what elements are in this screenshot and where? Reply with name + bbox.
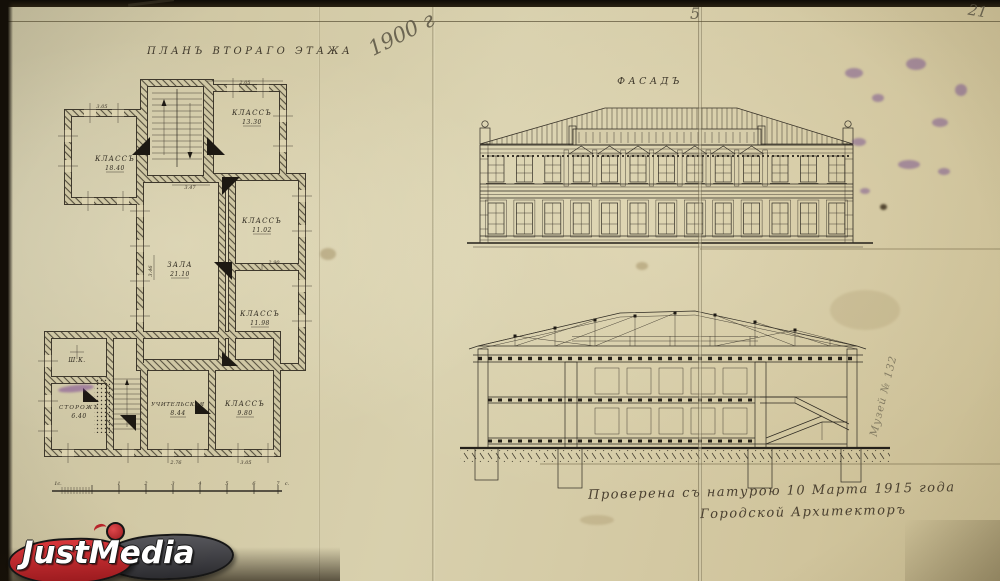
scale-tick-label: 1 <box>117 481 120 487</box>
room-area: 13.30 <box>242 119 262 126</box>
room-label: УЧИТЕЛЬСКАЯ <box>151 402 204 408</box>
ink-stain <box>860 188 870 194</box>
sheet-edge-left <box>0 0 13 581</box>
sheet-border-line <box>0 21 1000 22</box>
dimension: 3.47 <box>184 185 196 191</box>
dimension: 2.90 <box>267 260 280 266</box>
watermark-text-media: Media <box>89 535 195 571</box>
paper-stain <box>320 248 336 260</box>
ink-stain <box>955 84 967 96</box>
paper-crease <box>432 0 435 581</box>
paper-crease <box>318 0 320 581</box>
facade-title: ФАСАДЪ <box>617 76 683 87</box>
room-label: КЛАССЪ <box>94 155 135 163</box>
page-number-note: 21 <box>967 1 989 22</box>
room-area: 21.10 <box>169 271 190 278</box>
plan-title: ПЛАНЪ ВТОРАГО ЭТАЖА <box>147 46 353 57</box>
scale-label: 1с. <box>54 481 62 487</box>
room-area: 18.40 <box>105 165 125 172</box>
dimension: 3.05 <box>96 104 107 110</box>
justmedia-watermark: JustMedia <box>6 522 236 580</box>
room-area: 6.40 <box>71 413 86 420</box>
scale-tick-label: 7 <box>276 481 280 487</box>
scale-unit: с. <box>285 481 290 487</box>
room-area: 8.44 <box>170 410 185 417</box>
scale-tick-label: 5 <box>225 481 228 487</box>
paper-stain <box>830 290 900 330</box>
watermark-text-just: Just <box>22 535 89 571</box>
facade-upper-windows <box>486 146 847 184</box>
facade-lower-windows <box>486 200 848 237</box>
section-floors <box>473 355 863 444</box>
room-area: 11.02 <box>252 227 272 234</box>
closet-label: Ш.К. <box>67 357 85 364</box>
pencil-year-note: 1900 г <box>364 7 438 60</box>
paper-crease <box>540 463 1000 465</box>
ink-stain <box>872 94 884 102</box>
floor-plan-drawing: КЛАССЪ 18.40 КЛАССЪ 13.30 ЗАЛА 21.10 КЛА… <box>32 75 317 475</box>
paper-stain <box>636 262 648 270</box>
facade-body <box>467 145 873 247</box>
room-label: КЛАССЪ <box>224 400 265 408</box>
sheet-corner-shadow <box>905 520 1000 581</box>
ink-stain <box>906 58 926 70</box>
watermark-text: JustMedia <box>22 535 194 571</box>
scale-tick-label: 6 <box>252 481 256 487</box>
section-drawing <box>455 300 895 510</box>
scale-bar: 1с. 1 2 3 4 5 6 7 с. <box>50 480 290 500</box>
room-area: 9.80 <box>237 410 252 417</box>
dimension: 2.05 <box>238 80 250 86</box>
scale-tick-label: 4 <box>197 481 201 487</box>
facade-pilasters <box>564 150 767 186</box>
room-label: ЗАЛА <box>167 261 193 269</box>
room-label: КЛАССЪ <box>231 109 272 117</box>
room-label: СТОРОЖЪ <box>59 405 99 411</box>
room-label: КЛАССЪ <box>241 217 282 225</box>
staircase-main <box>152 89 202 167</box>
dimension: 3.05 <box>240 460 251 466</box>
ink-stain <box>938 168 950 175</box>
ink-stain <box>932 118 948 127</box>
ink-stain <box>845 68 863 78</box>
paper-crease <box>700 248 1000 250</box>
paper-stain <box>580 515 614 525</box>
architect-signature: Городской Архитекторъ <box>700 503 907 522</box>
sheet-number-note: 5 <box>690 4 700 23</box>
scale-tick-label: 3 <box>171 481 174 487</box>
room-label: КЛАССЪ <box>239 310 280 318</box>
ink-stain <box>898 160 920 169</box>
paper-stain <box>880 204 887 210</box>
dimension: 3.46 <box>148 265 154 277</box>
section-staircase <box>760 397 849 444</box>
archival-drawing-sheet: КЛАССЪ 18.40 КЛАССЪ 13.30 ЗАЛА 21.10 КЛА… <box>0 0 1000 581</box>
facade-elevation-drawing: ФАСАДЪ <box>455 70 885 250</box>
scale-tick-label: 2 <box>143 481 147 487</box>
dimension: 2.76 <box>169 460 182 466</box>
ink-stain <box>852 138 866 146</box>
room-area: 11.98 <box>250 320 270 327</box>
section-walls <box>478 349 857 448</box>
section-roof-truss <box>469 311 866 349</box>
